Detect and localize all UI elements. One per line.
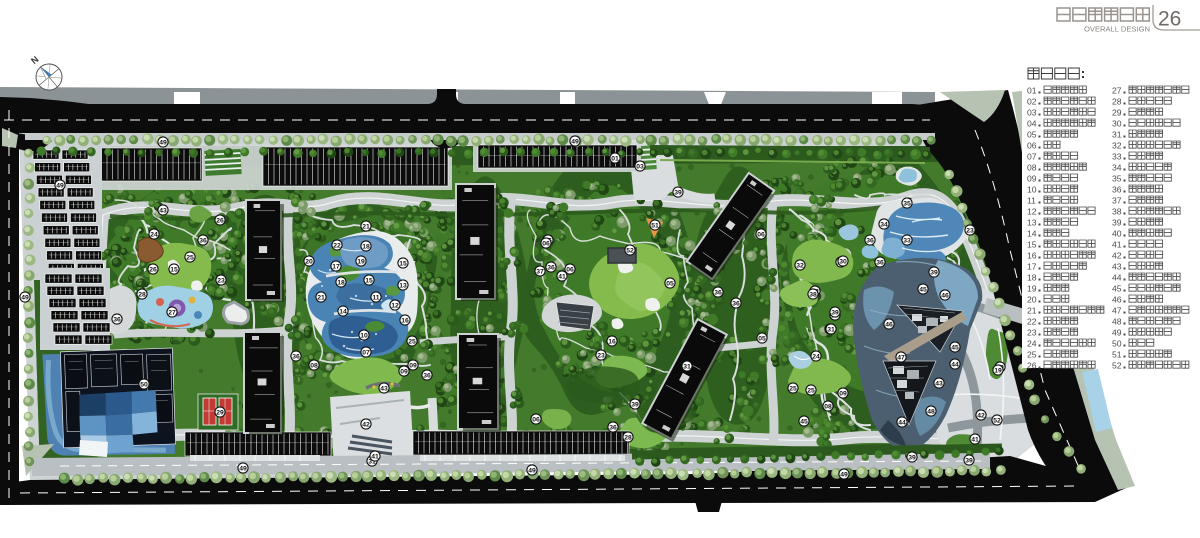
svg-text:52: 52 (1112, 361, 1122, 371)
svg-text:18: 18 (337, 279, 345, 286)
svg-text:31: 31 (683, 363, 691, 370)
svg-text:38: 38 (809, 291, 817, 298)
svg-text:35: 35 (1112, 174, 1122, 184)
svg-text:17: 17 (332, 263, 340, 270)
svg-text:01: 01 (1027, 86, 1037, 96)
svg-text:16: 16 (401, 317, 409, 324)
svg-text:45: 45 (800, 418, 808, 425)
svg-text:40: 40 (1112, 229, 1122, 239)
svg-text:49: 49 (56, 182, 64, 189)
svg-text:41: 41 (558, 273, 566, 280)
svg-text:11: 11 (372, 294, 379, 301)
svg-text:42: 42 (1112, 251, 1122, 261)
svg-text:01: 01 (611, 155, 619, 162)
svg-text:30: 30 (839, 258, 847, 265)
svg-text:05: 05 (1027, 130, 1037, 140)
svg-text:19: 19 (357, 258, 365, 265)
svg-text:47: 47 (897, 354, 905, 361)
svg-text:23: 23 (597, 352, 605, 359)
svg-text:36: 36 (714, 289, 722, 296)
svg-text:36: 36 (876, 259, 884, 266)
svg-text:30: 30 (1112, 119, 1122, 129)
svg-text:22: 22 (1027, 317, 1037, 327)
svg-text:26: 26 (149, 266, 157, 273)
svg-text:10: 10 (1027, 185, 1037, 195)
svg-text:47: 47 (1112, 306, 1122, 316)
svg-text:08: 08 (824, 403, 832, 410)
svg-text:36: 36 (1112, 185, 1122, 195)
svg-text:03: 03 (1027, 108, 1037, 118)
svg-text:13: 13 (399, 282, 407, 289)
svg-text:39: 39 (631, 401, 639, 408)
svg-text:28: 28 (624, 434, 632, 441)
svg-text:37: 37 (1112, 196, 1122, 206)
svg-text:48: 48 (927, 408, 935, 415)
svg-text:25: 25 (186, 254, 194, 261)
svg-text:51: 51 (651, 222, 659, 229)
svg-text:28: 28 (1112, 97, 1122, 107)
svg-text:36: 36 (199, 237, 207, 244)
svg-text:24: 24 (1027, 339, 1037, 349)
svg-text:06: 06 (757, 231, 765, 238)
svg-text:22: 22 (333, 242, 341, 249)
svg-text:09: 09 (409, 362, 417, 369)
svg-text:06: 06 (1027, 141, 1037, 151)
svg-text:36: 36 (609, 424, 617, 431)
svg-text:39: 39 (930, 269, 938, 276)
svg-text:52: 52 (993, 417, 1001, 424)
svg-text:12: 12 (1027, 207, 1037, 217)
svg-text:29: 29 (216, 409, 224, 416)
svg-text:25: 25 (807, 387, 815, 394)
svg-text:21: 21 (362, 223, 370, 230)
svg-text:36: 36 (113, 316, 121, 323)
svg-text:36: 36 (547, 264, 555, 271)
svg-text:36: 36 (732, 300, 740, 307)
svg-text:35: 35 (903, 200, 911, 207)
svg-text:26: 26 (1027, 361, 1037, 371)
svg-text:21: 21 (317, 294, 325, 301)
svg-text:05: 05 (666, 280, 674, 287)
svg-text:52: 52 (626, 247, 634, 254)
svg-text:19: 19 (1027, 284, 1037, 294)
svg-text:08: 08 (310, 362, 318, 369)
svg-text:39: 39 (965, 457, 973, 464)
svg-text:42: 42 (362, 421, 370, 428)
svg-text:25: 25 (1027, 350, 1037, 360)
svg-text:41: 41 (371, 453, 379, 460)
svg-text:04: 04 (1027, 119, 1037, 129)
svg-text:19: 19 (994, 367, 1002, 374)
svg-text:31: 31 (1112, 130, 1122, 140)
svg-text:41: 41 (1112, 240, 1122, 250)
svg-text:34: 34 (880, 221, 888, 228)
svg-text:49: 49 (528, 467, 536, 474)
svg-text:15: 15 (170, 266, 178, 273)
svg-text:39: 39 (831, 309, 839, 316)
svg-text:21: 21 (1027, 306, 1037, 316)
svg-text:44: 44 (951, 361, 959, 368)
svg-text:50: 50 (1112, 339, 1122, 349)
svg-text:27: 27 (1112, 86, 1122, 96)
svg-text:49: 49 (239, 465, 247, 472)
svg-text:46: 46 (885, 321, 893, 328)
svg-text:33: 33 (1112, 152, 1122, 162)
svg-text:44: 44 (898, 419, 906, 426)
svg-text:25: 25 (408, 338, 416, 345)
svg-text:09: 09 (1027, 174, 1037, 184)
svg-text:45: 45 (919, 286, 927, 293)
svg-text:29: 29 (1112, 108, 1122, 118)
svg-text:39: 39 (908, 454, 916, 461)
svg-text:11: 11 (1027, 196, 1036, 206)
svg-text:26: 26 (1158, 8, 1181, 31)
svg-text:OVERALL DESIGN: OVERALL DESIGN (1084, 25, 1150, 34)
svg-text:14: 14 (1027, 229, 1037, 239)
svg-text:15: 15 (399, 260, 407, 267)
svg-text:20: 20 (305, 258, 313, 265)
svg-text:16: 16 (608, 338, 616, 345)
svg-text:31: 31 (827, 326, 835, 333)
svg-text:27: 27 (168, 309, 176, 316)
svg-text:25: 25 (789, 385, 797, 392)
svg-text:41: 41 (971, 436, 979, 443)
svg-text:43: 43 (159, 207, 167, 214)
svg-text:14: 14 (339, 308, 347, 315)
svg-text:02: 02 (1027, 97, 1037, 107)
svg-text:09: 09 (839, 390, 847, 397)
svg-text:20: 20 (1027, 295, 1037, 305)
svg-text:46: 46 (1112, 295, 1122, 305)
svg-text:46: 46 (941, 292, 949, 299)
svg-text:48: 48 (1112, 317, 1122, 327)
svg-text:16: 16 (1027, 251, 1037, 261)
svg-text:39: 39 (1112, 218, 1122, 228)
svg-text:07: 07 (362, 349, 370, 356)
svg-text:24: 24 (150, 231, 158, 238)
svg-text:15: 15 (365, 277, 373, 284)
svg-text:36: 36 (866, 237, 874, 244)
svg-text:45: 45 (1112, 284, 1122, 294)
svg-text:12: 12 (391, 302, 399, 309)
svg-text:49: 49 (571, 138, 579, 145)
svg-text:23: 23 (966, 227, 974, 234)
svg-text:03: 03 (636, 163, 644, 170)
svg-text:17: 17 (1027, 262, 1037, 272)
svg-text:49: 49 (1112, 328, 1122, 338)
svg-text:28: 28 (138, 291, 146, 298)
svg-text:18: 18 (362, 243, 370, 250)
svg-text:07: 07 (1027, 152, 1037, 162)
svg-text:36: 36 (292, 353, 300, 360)
svg-text:32: 32 (1112, 141, 1122, 151)
svg-text:39: 39 (674, 189, 682, 196)
svg-text:18: 18 (1027, 273, 1037, 283)
svg-text:06: 06 (532, 416, 540, 423)
svg-text:26: 26 (216, 217, 224, 224)
svg-text:09: 09 (400, 368, 408, 375)
svg-text:10: 10 (360, 332, 368, 339)
svg-text:42: 42 (977, 412, 985, 419)
svg-text:38: 38 (1112, 207, 1122, 217)
svg-text:49: 49 (159, 139, 167, 146)
svg-text:23: 23 (217, 277, 225, 284)
svg-text:49: 49 (840, 471, 848, 478)
svg-text:49: 49 (21, 294, 29, 301)
svg-text:44: 44 (1112, 273, 1122, 283)
svg-text:50: 50 (140, 381, 148, 388)
svg-text:43: 43 (1112, 262, 1122, 272)
svg-text:43: 43 (380, 385, 388, 392)
svg-text:24: 24 (812, 353, 820, 360)
svg-text:23: 23 (1027, 328, 1037, 338)
svg-text:51: 51 (1112, 350, 1122, 360)
svg-text:33: 33 (903, 237, 911, 244)
svg-text:08: 08 (1027, 163, 1037, 173)
svg-text:06: 06 (542, 240, 550, 247)
svg-text:32: 32 (796, 262, 804, 269)
svg-text:05: 05 (758, 335, 766, 342)
svg-text:36: 36 (423, 372, 431, 379)
svg-text:37: 37 (536, 268, 544, 275)
svg-text:13: 13 (1027, 218, 1037, 228)
svg-text:34: 34 (1112, 163, 1122, 173)
svg-text:15: 15 (1027, 240, 1037, 250)
svg-text:43: 43 (935, 380, 943, 387)
svg-text:06: 06 (566, 266, 574, 273)
svg-text:45: 45 (951, 344, 959, 351)
